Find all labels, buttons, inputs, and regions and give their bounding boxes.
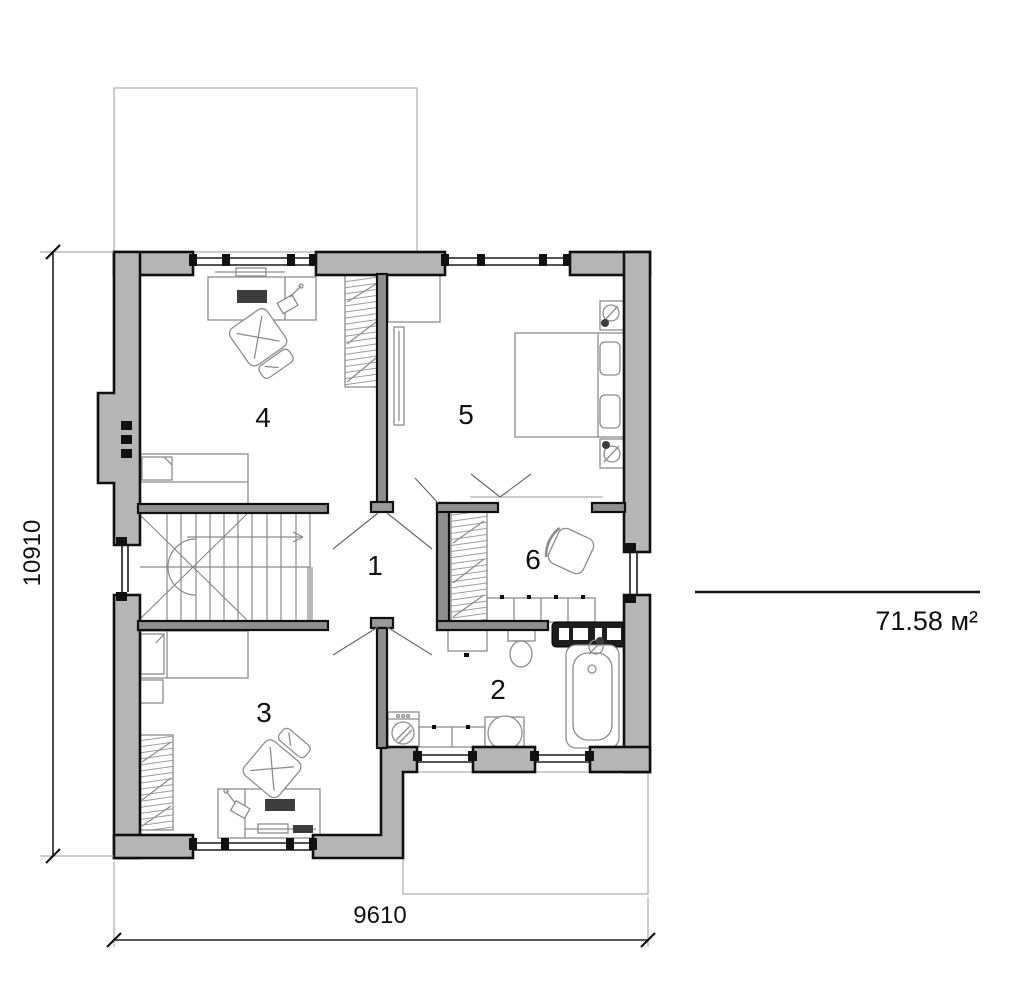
room4-bed (139, 454, 248, 505)
room6-furniture (451, 510, 596, 623)
dimension-horizontal: 9610 (353, 902, 406, 929)
room-labels: 4 5 6 1 3 2 (255, 399, 541, 728)
window-top-left (189, 254, 317, 266)
area-annotation: 71.58 м² (695, 592, 980, 636)
room6-chair (541, 524, 596, 577)
bathroom-fixtures (388, 622, 626, 750)
room3-label: 3 (256, 697, 272, 728)
bathroom-cabinet (448, 629, 487, 657)
room3-furniture (138, 631, 320, 838)
staircase (139, 513, 312, 621)
bathtub (566, 637, 619, 748)
wall-room6-top-right (592, 503, 625, 512)
room5-nightstand-bottom (600, 439, 625, 468)
room4-keyboard (237, 290, 267, 303)
top-wall-center (316, 252, 445, 275)
room5-cabinet (388, 275, 440, 322)
bottom-wall-left (114, 835, 193, 858)
room5-nightstand-top (600, 301, 625, 330)
washbasin (485, 716, 524, 750)
floor-plan-page: 4 5 6 1 3 2 10910 9610 71.58 м² (0, 0, 1024, 982)
room5-label: 5 (458, 399, 474, 430)
room3-desk-lamp (224, 789, 250, 818)
washing-machine (388, 712, 419, 747)
window-right (625, 543, 637, 603)
room4-office-chair (227, 306, 299, 383)
room4-label: 4 (255, 402, 271, 433)
dimension-bottom: 9610 (107, 862, 655, 947)
room5-double-bed (515, 333, 625, 437)
room5-furniture (388, 275, 625, 468)
hall-label: 1 (367, 550, 383, 581)
room6-cabinet-row (487, 595, 595, 622)
wall-stairs-room3 (138, 621, 328, 630)
room4-desk-lamp (277, 284, 303, 314)
wall-room4-room5 (377, 274, 387, 503)
wall-room6-bath (437, 621, 548, 630)
window-left (116, 537, 128, 601)
room5-mirror-panel (394, 327, 404, 425)
toilet (508, 629, 535, 667)
room3-nightstand (140, 680, 163, 703)
towel-radiator (552, 622, 626, 647)
bathroom-counter (419, 725, 485, 747)
floor-plan-drawing: 4 5 6 1 3 2 10910 9610 71.58 м² (0, 0, 1024, 982)
dimension-left: 10910 (19, 245, 114, 863)
window-top-right (441, 254, 571, 266)
room4-wardrobe (345, 273, 378, 387)
bath-bottom-wall-center (473, 747, 535, 772)
left-wall-upper (98, 252, 140, 545)
wall-room6-top-left (437, 503, 498, 512)
stair-direction-arrow (187, 532, 303, 542)
bottom-step-wall (313, 747, 417, 858)
dimension-vertical: 10910 (19, 520, 46, 587)
wall-hall-room6 (437, 503, 449, 630)
bathroom-label: 2 (490, 674, 506, 705)
wall-room4-stairs (138, 504, 328, 513)
room6-closet (451, 510, 487, 623)
window-bottom-left (189, 838, 317, 850)
window-bath-right (530, 751, 594, 762)
door-post-top (371, 502, 393, 512)
area-label: 71.58 м² (875, 606, 978, 636)
room4-furniture (139, 268, 378, 505)
left-wall-lower (114, 595, 140, 858)
door-post-bottom (371, 618, 393, 628)
bath-bottom-wall-right (590, 747, 650, 772)
right-wall-lower (624, 595, 650, 772)
room3-bed (138, 631, 248, 678)
room3-wardrobe (140, 735, 173, 830)
wall-room3-bath (377, 628, 387, 748)
chimney-vents (121, 421, 132, 458)
right-wall-upper (624, 252, 650, 552)
window-bath-left (413, 751, 477, 762)
room6-label: 6 (525, 544, 541, 575)
